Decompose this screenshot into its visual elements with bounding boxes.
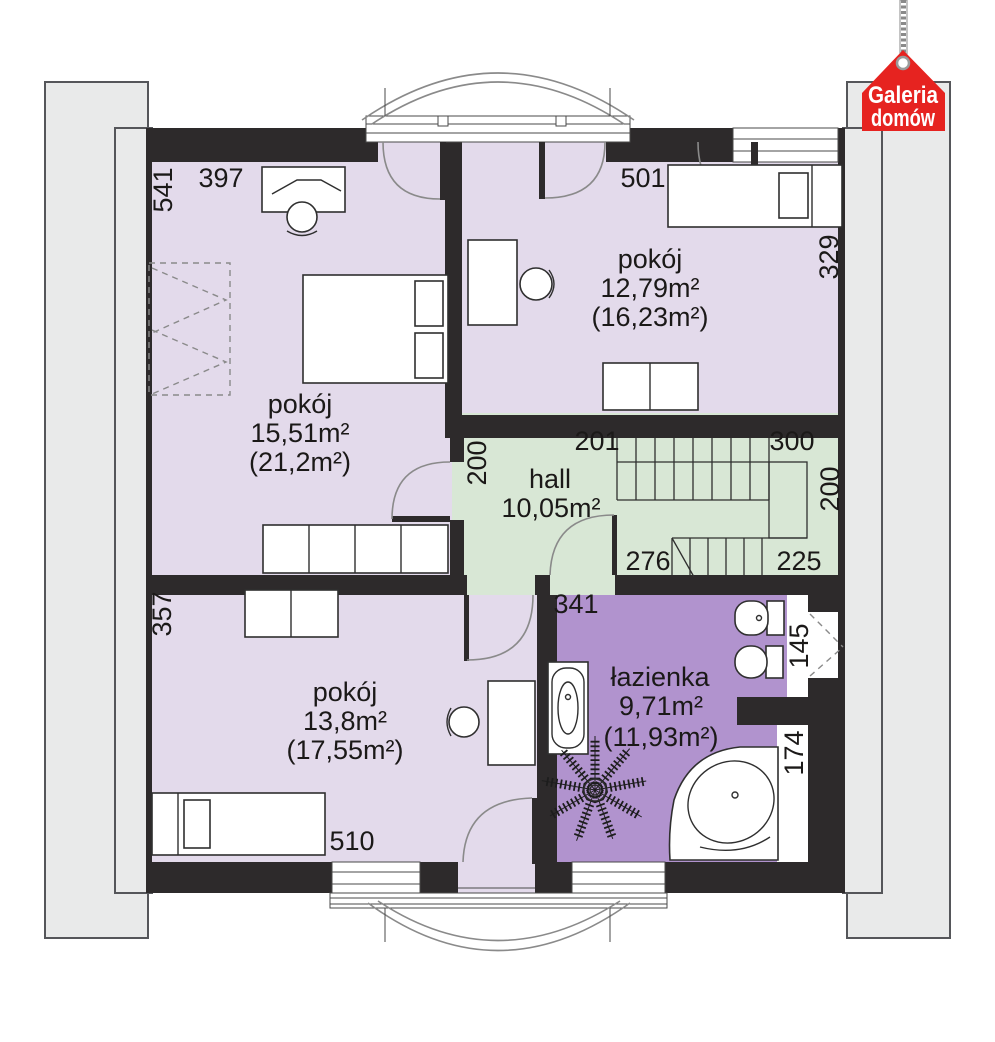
- chair: [287, 202, 317, 232]
- dim-200-left: 200: [462, 440, 492, 485]
- double-bed: [303, 275, 448, 383]
- room-area: 9,71m²: [619, 691, 703, 721]
- dormer-top: [362, 73, 634, 142]
- dim-145: 145: [784, 623, 814, 668]
- room-name: hall: [529, 464, 571, 494]
- label-bathroom: łazienka 9,71m² (11,93m²): [603, 662, 718, 752]
- dim-300: 300: [769, 426, 814, 456]
- room-name: pokój: [618, 244, 683, 274]
- dresser: [263, 525, 448, 573]
- window-top-right: [733, 128, 838, 162]
- dim-276: 276: [625, 546, 670, 576]
- washbasin: [548, 662, 588, 754]
- pillow: [415, 333, 443, 378]
- toilet: [735, 601, 784, 635]
- room-area: 10,05m²: [501, 493, 600, 523]
- room-area-gross: (21,2m²): [249, 447, 351, 477]
- room-name: łazienka: [610, 662, 710, 692]
- window-bottom-left: [332, 862, 420, 893]
- pillow: [779, 173, 808, 218]
- room-area: 13,8m²: [303, 706, 387, 736]
- room-area-gross: (17,55m²): [286, 735, 403, 765]
- room-name: pokój: [313, 677, 378, 707]
- logo-text-line2: domów: [871, 105, 935, 132]
- dim-329: 329: [814, 234, 844, 279]
- roof-eave-right: [843, 82, 950, 938]
- single-bed: [152, 793, 325, 855]
- room-area: 15,51m²: [250, 418, 349, 448]
- dim-200-right: 200: [815, 466, 845, 511]
- dim-225: 225: [776, 546, 821, 576]
- dim-174: 174: [779, 730, 809, 775]
- chair: [449, 707, 479, 737]
- dim-201: 201: [574, 426, 619, 456]
- room-name: pokój: [268, 389, 333, 419]
- chair: [520, 268, 552, 300]
- dim-501: 501: [620, 163, 665, 193]
- bidet: [735, 646, 783, 678]
- window-bathroom: [572, 862, 665, 893]
- dresser: [245, 590, 338, 637]
- room-area-gross: (11,93m²): [603, 722, 718, 752]
- pillow: [184, 800, 210, 848]
- galeria-domow-logo: Galeria domów: [862, 0, 945, 132]
- dim-341: 341: [553, 589, 598, 619]
- dresser: [603, 363, 698, 410]
- dormer-bottom: [330, 893, 667, 951]
- logo-grommet: [897, 57, 909, 69]
- dim-510: 510: [329, 826, 374, 856]
- dormer-arc-outer: [368, 903, 630, 951]
- roof-eave-left: [45, 82, 152, 938]
- room-area-gross: (16,23m²): [591, 302, 708, 332]
- floorplan-drawing: 541 397 501 329 200 201 300 200 276 225 …: [0, 0, 995, 1042]
- dim-541: 541: [148, 167, 178, 212]
- dim-397: 397: [198, 163, 243, 193]
- room-area: 12,79m²: [600, 273, 699, 303]
- pillow: [415, 281, 443, 326]
- single-bed: [668, 165, 842, 227]
- dormer-arc-outer: [362, 73, 634, 120]
- dim-357: 357: [147, 591, 177, 636]
- floorplan-page: 541 397 501 329 200 201 300 200 276 225 …: [0, 0, 995, 1042]
